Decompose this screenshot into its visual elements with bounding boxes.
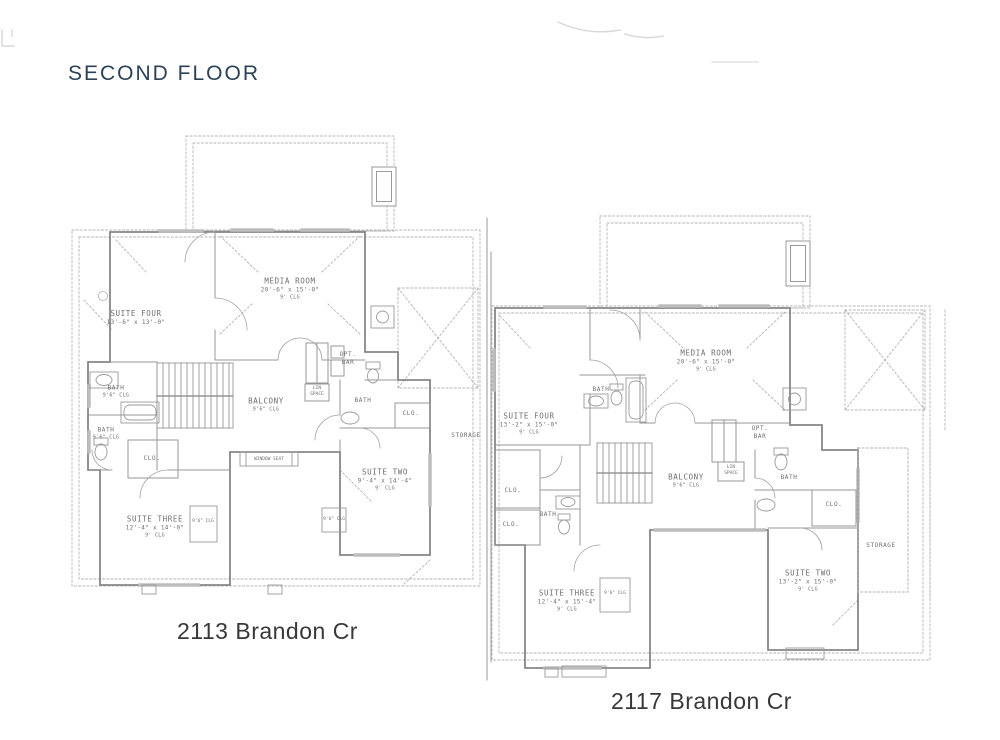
label-bay-clg-a: 9'6" CLG xyxy=(192,519,214,525)
room-label-lin-space: LIN SPACE xyxy=(310,386,324,398)
room-label-clo-left: CLO. xyxy=(144,455,161,463)
room-label-bath-right-2: BATH xyxy=(781,474,798,482)
room-label-suite-four: SUITE FOUR 13'-6" x 13'-0" xyxy=(107,309,166,327)
address-2113: 2113 Brandon Cr xyxy=(177,618,358,645)
room-label-bath-upper: BATH 9'6" CLG xyxy=(103,385,129,400)
room-label-suite-two-2: SUITE TWO 13'-2" x 15'-0" 9' CLG xyxy=(779,569,838,594)
floor-plan-sheet: SECOND FLOOR SUITE FOUR 13'-6" x 13'-0" … xyxy=(0,0,1000,740)
label-window-seat: WINDOW SEAT xyxy=(254,457,284,463)
label-bay-clg-b: 9'6" CLG xyxy=(323,517,345,523)
room-label-lin-space-2: LIN SPACE xyxy=(724,465,738,477)
room-label-opt-bar-2: OPT. BAR xyxy=(752,425,769,441)
room-label-clo-right-2: CLO. xyxy=(826,501,843,509)
room-label-storage-2: STORAGE xyxy=(866,542,896,550)
room-label-bath-right: BATH xyxy=(355,397,372,405)
room-label-clo-right: CLO. xyxy=(403,410,420,418)
room-label-suite-three-2: SUITE THREE 12'-4" x 15'-4" 9' CLG xyxy=(538,589,597,614)
room-label-balcony-2: BALCONY 9'6" CLG xyxy=(668,473,704,490)
room-label-balcony: BALCONY 9'6" CLG xyxy=(248,397,284,414)
room-label-suite-three: SUITE THREE 12'-4" x 14'-0" 9' CLG xyxy=(126,515,185,540)
room-label-bath-lower: BATH 9'6" CLG xyxy=(93,427,119,442)
room-label-suite-two: SUITE TWO 9'-4" x 14'-4" 9' CLG xyxy=(358,468,413,493)
room-label-media-room: MEDIA ROOM 20'-6" x 15'-0" 9' CLG xyxy=(261,277,320,302)
room-label-bath-left-2: BATH xyxy=(540,511,557,519)
room-label-media-room-2: MEDIA ROOM 20'-6" x 15'-0" 9' CLG xyxy=(677,349,736,374)
room-label-clo-b-2: CLO. xyxy=(503,521,520,529)
address-2117: 2117 Brandon Cr xyxy=(611,688,792,715)
label-bay-clg-2: 9'6" CLG xyxy=(604,591,626,597)
left-plan-stairs xyxy=(157,363,233,428)
right-plan-stairs xyxy=(597,443,652,503)
room-label-suite-four-2: SUITE FOUR 13'-2" x 15'-0" 9' CLG xyxy=(500,412,559,437)
page-title: SECOND FLOOR xyxy=(68,62,260,86)
room-label-clo-a-2: CLO. xyxy=(505,487,522,495)
floorplan-linework xyxy=(0,0,1000,740)
room-label-storage: STORAGE xyxy=(451,432,481,440)
room-label-bath-top-2: BATH xyxy=(593,386,610,394)
room-label-opt-bar: OPT. BAR xyxy=(340,351,357,367)
left-plan-fixtures xyxy=(90,306,394,594)
scan-artifacts xyxy=(2,22,758,62)
